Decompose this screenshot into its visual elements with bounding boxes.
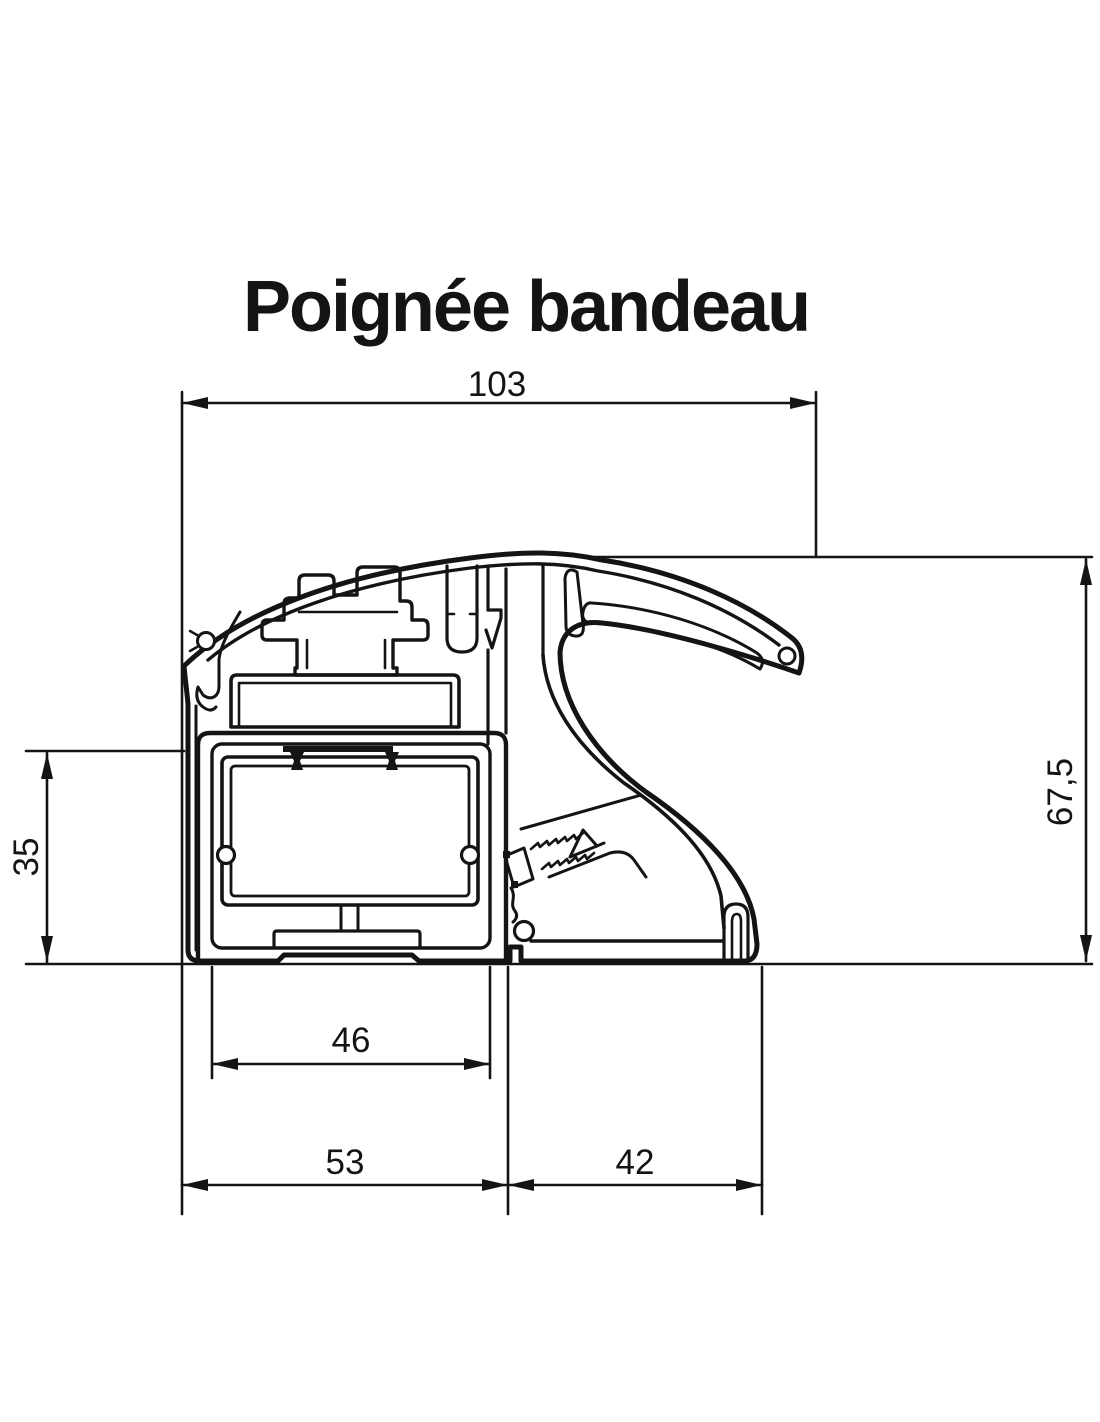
dim-label-67-5: 67,5 xyxy=(1041,758,1080,826)
arrowhead-bottom xyxy=(1080,935,1092,961)
aluminium-profile-section xyxy=(184,553,802,961)
arrowhead-42-left xyxy=(508,1179,534,1191)
arrowhead-left xyxy=(182,397,208,409)
box-boss-right xyxy=(462,847,479,864)
profile-cross-section-diagram: Poignée bandeau xyxy=(0,0,1100,1422)
arrowhead-bottom xyxy=(41,936,53,962)
drawing-title: Poignée bandeau xyxy=(243,267,809,347)
screw-head-mark-top xyxy=(503,851,510,858)
dim-label-53: 53 xyxy=(326,1143,365,1182)
box-boss-left xyxy=(218,847,235,864)
dim-label-42: 42 xyxy=(616,1143,655,1182)
handle-tip-bead xyxy=(779,648,795,664)
cover-bar xyxy=(283,746,393,752)
left-boss-notch xyxy=(190,631,197,651)
screw-head-mark-bottom xyxy=(511,881,518,888)
arrowhead-42-right xyxy=(736,1179,762,1191)
arrowhead-left xyxy=(212,1058,238,1070)
technical-drawing-page: Poignée bandeau xyxy=(0,0,1100,1422)
arrowhead-right xyxy=(464,1058,490,1070)
dim-label-103: 103 xyxy=(468,365,526,404)
arrowhead-top xyxy=(1080,559,1092,585)
left-screw-boss xyxy=(198,633,215,650)
arrowhead-53-right xyxy=(482,1179,508,1191)
dim-bottom-left xyxy=(182,967,762,1214)
dim-label-35: 35 xyxy=(7,838,46,877)
arrowhead-53-left xyxy=(182,1179,208,1191)
arrowhead-right xyxy=(790,397,816,409)
foot-boss xyxy=(515,922,534,941)
arrowhead-top xyxy=(41,753,53,779)
dim-label-46: 46 xyxy=(332,1021,371,1060)
dim-box-height xyxy=(26,751,184,962)
